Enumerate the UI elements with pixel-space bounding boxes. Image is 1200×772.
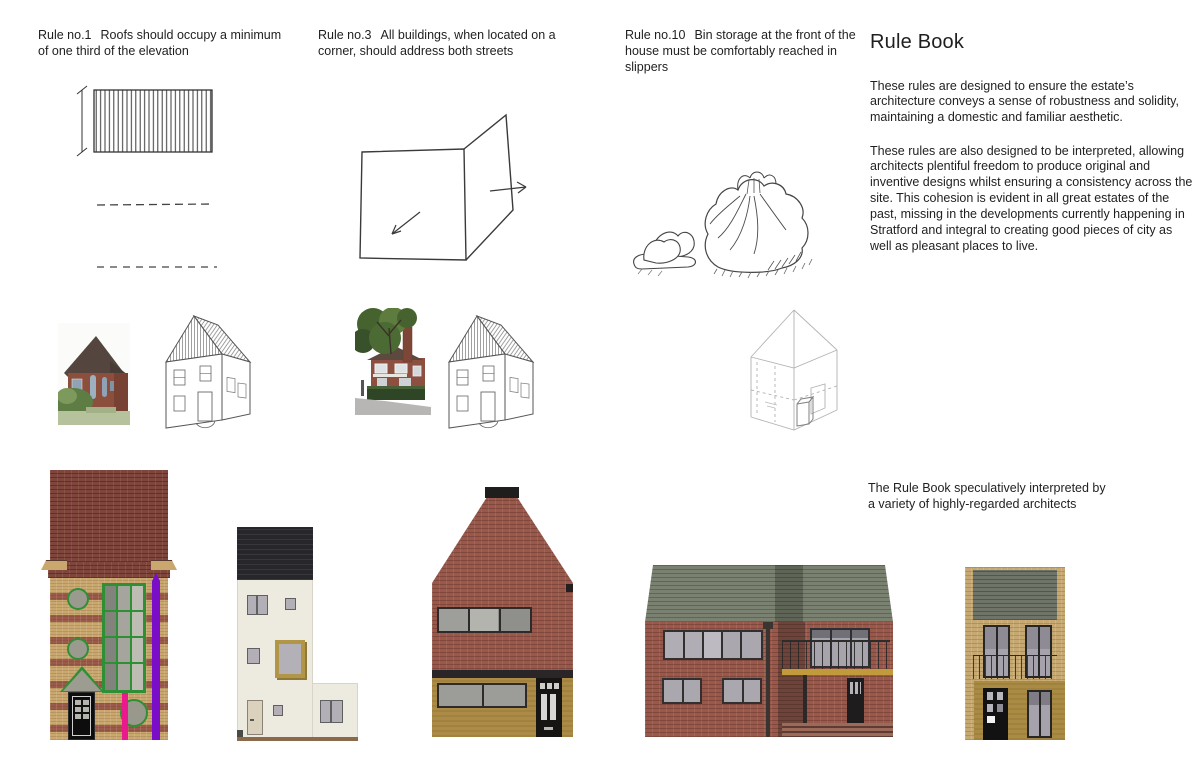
cornice-left-wing (41, 560, 67, 570)
page: Rule no.1Roofs should occupy a minimum o… (0, 0, 1200, 772)
black-front-door (68, 692, 95, 740)
lower-window (722, 678, 762, 704)
black-front-door (536, 678, 562, 737)
porthole-window (67, 588, 89, 610)
caption-line-1: The Rule Book speculatively interpreted … (868, 480, 1168, 496)
balcony-railing (782, 640, 890, 671)
dark-pitched-roof (237, 527, 313, 580)
rule-1-axonometric-house-drawing (160, 298, 260, 435)
pink-stripe (122, 693, 128, 740)
corner-planes-sketch (352, 112, 537, 277)
caption-line-2: a variety of highly-regarded architects (868, 496, 1168, 512)
recessed-roof (973, 570, 1057, 620)
roof-third-sketch (72, 84, 222, 274)
rule-3-precedent-photo (355, 308, 431, 415)
elevation-wide-brick-house (645, 565, 893, 737)
chimney-cap (485, 487, 519, 498)
small-square-window (247, 648, 260, 664)
elevation-oast-style-brick-house (432, 487, 573, 737)
hipped-roof (645, 565, 893, 622)
downpipe (766, 627, 770, 737)
intro-paragraph-2: These rules are also designed to be inte… (870, 144, 1194, 255)
rule-10-house-with-bin-drawing (737, 302, 849, 432)
elevation-white-render-house (237, 527, 358, 742)
black-front-door (983, 688, 1008, 740)
extension-double-window (320, 700, 343, 723)
chimney-breast (775, 565, 803, 622)
porthole-window (67, 638, 89, 660)
rule-10-label: Rule no.10 (625, 28, 685, 42)
intro-paragraph-1: These rules are designed to ensure the e… (870, 79, 1194, 127)
rule-10-text: Rule no.10Bin storage at the front of th… (625, 27, 857, 76)
upper-ribbon-window (437, 607, 532, 633)
page-title: Rule Book (870, 31, 964, 54)
elevation-buff-brick-house (965, 567, 1065, 740)
bin-bag-and-slippers-sketch (618, 162, 823, 287)
upper-ribbon-window (663, 630, 763, 660)
interpretations-caption: The Rule Book speculatively interpreted … (868, 480, 1168, 513)
rainwater-hopper (566, 584, 573, 592)
small-square-window (273, 705, 283, 716)
purple-pilaster (152, 573, 160, 740)
small-square-window (285, 598, 296, 610)
rule-1-text: Rule no.1Roofs should occupy a minimum o… (38, 27, 290, 60)
cornice-right-wing (151, 560, 177, 570)
elevation-postmodern-brick-tower (48, 470, 170, 740)
ground-ribbon-window (437, 683, 527, 708)
entrance-steps (782, 723, 893, 737)
gold-surround-window (275, 640, 305, 678)
ground-floor-window (1027, 690, 1052, 738)
rule-3-text: Rule no.3All buildings, when located on … (318, 27, 590, 60)
rule-3-label: Rule no.3 (318, 28, 372, 42)
rule-3-axonometric-house-drawing (443, 298, 543, 435)
front-door (247, 700, 263, 735)
balcony-gold-band (782, 669, 893, 675)
plinth-strip (237, 737, 358, 741)
upper-double-window (247, 595, 268, 615)
rule-1-precedent-photo (58, 323, 130, 425)
lintel-band (432, 670, 573, 678)
lower-window (662, 678, 702, 704)
balcony-railing (973, 655, 1057, 679)
green-grid-window (102, 583, 146, 693)
rule-1-label: Rule no.1 (38, 28, 92, 42)
balcony-door (847, 678, 864, 723)
